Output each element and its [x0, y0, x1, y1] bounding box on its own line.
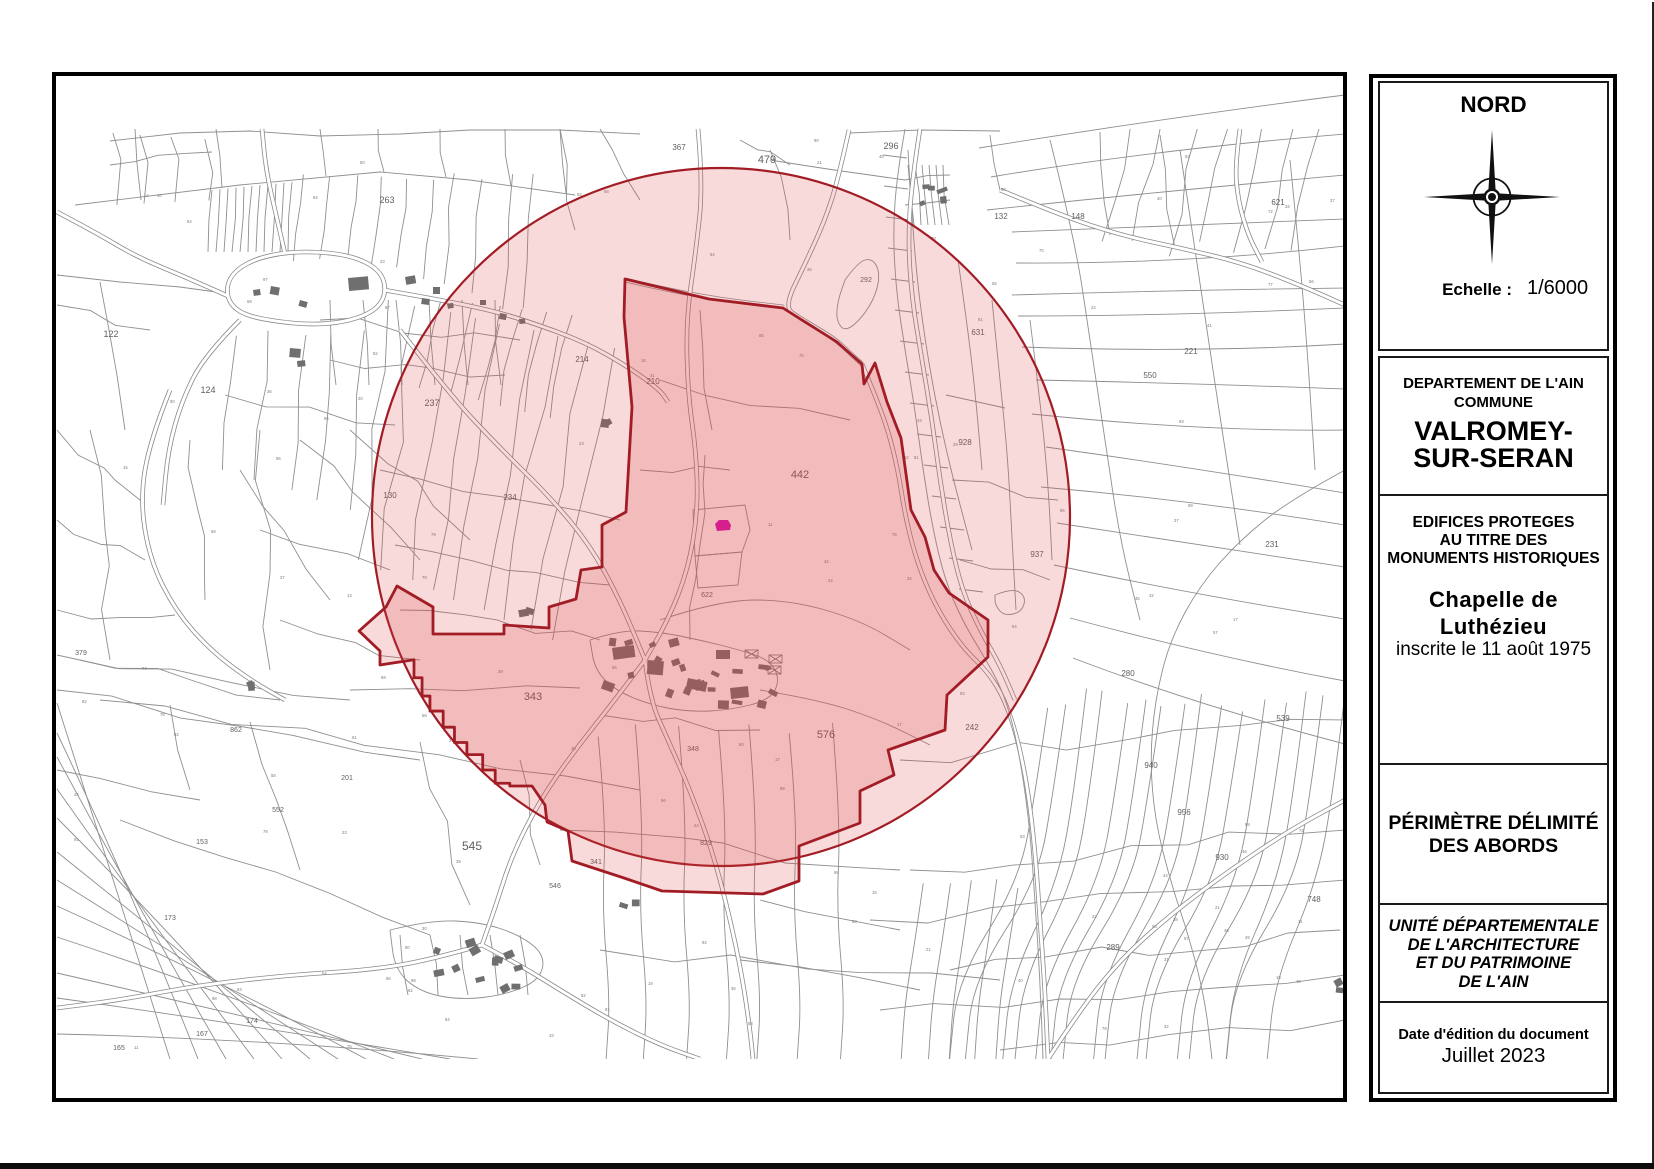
svg-text:NORD: NORD — [1460, 92, 1526, 117]
svg-text:367: 367 — [672, 143, 686, 152]
svg-text:80: 80 — [405, 945, 410, 950]
svg-text:Luthézieu: Luthézieu — [1440, 614, 1547, 639]
svg-text:44: 44 — [1163, 873, 1168, 878]
svg-text:132: 132 — [994, 212, 1008, 221]
svg-text:38: 38 — [1173, 917, 1178, 922]
svg-text:862: 862 — [230, 727, 242, 734]
svg-text:82: 82 — [373, 351, 378, 356]
svg-text:40: 40 — [1018, 978, 1023, 983]
svg-text:479: 479 — [758, 154, 776, 166]
svg-text:956: 956 — [1177, 808, 1191, 817]
svg-text:42: 42 — [1149, 593, 1154, 598]
svg-text:57: 57 — [1184, 936, 1189, 941]
svg-text:930: 930 — [1215, 853, 1229, 862]
svg-text:552: 552 — [272, 807, 284, 814]
svg-text:56: 56 — [422, 713, 427, 718]
svg-text:11: 11 — [134, 1045, 139, 1050]
svg-text:539: 539 — [1276, 714, 1290, 723]
svg-text:57: 57 — [1213, 630, 1218, 635]
svg-text:23: 23 — [380, 259, 385, 264]
svg-text:Date d'édition du document: Date d'édition du document — [1398, 1027, 1589, 1043]
svg-text:37: 37 — [1330, 198, 1335, 203]
svg-text:74: 74 — [142, 666, 147, 671]
svg-text:68: 68 — [211, 529, 216, 534]
svg-text:21: 21 — [817, 160, 822, 165]
svg-text:98: 98 — [212, 996, 217, 1001]
svg-text:263: 263 — [379, 195, 394, 205]
svg-text:EDIFICES PROTEGES: EDIFICES PROTEGES — [1413, 514, 1575, 531]
svg-text:COMMUNE: COMMUNE — [1454, 394, 1533, 411]
svg-text:1/6000: 1/6000 — [1527, 277, 1588, 299]
svg-text:Juillet 2023: Juillet 2023 — [1442, 1044, 1546, 1067]
svg-text:89: 89 — [1188, 503, 1193, 508]
svg-text:79: 79 — [263, 829, 268, 834]
svg-text:ET DU PATRIMOINE: ET DU PATRIMOINE — [1416, 954, 1572, 972]
svg-text:66: 66 — [1309, 279, 1314, 284]
svg-text:20: 20 — [358, 396, 363, 401]
svg-text:280: 280 — [1121, 669, 1135, 678]
svg-text:19: 19 — [648, 981, 653, 986]
svg-text:89: 89 — [381, 675, 386, 680]
svg-text:621: 621 — [1271, 198, 1285, 207]
svg-text:inscrite le 11 août 1975: inscrite le 11 août 1975 — [1396, 639, 1591, 660]
svg-text:545: 545 — [462, 839, 482, 853]
svg-text:90: 90 — [814, 138, 819, 143]
svg-text:11: 11 — [1298, 919, 1303, 924]
svg-text:94: 94 — [313, 195, 318, 200]
svg-text:72: 72 — [1268, 209, 1273, 214]
svg-text:379: 379 — [75, 650, 87, 657]
svg-text:296: 296 — [883, 141, 898, 151]
svg-text:Echelle :: Echelle : — [1442, 280, 1512, 299]
svg-text:36: 36 — [731, 986, 736, 991]
svg-text:48: 48 — [1224, 928, 1229, 933]
svg-text:DE L'ARCHITECTURE: DE L'ARCHITECTURE — [1408, 936, 1581, 954]
svg-text:52: 52 — [1185, 154, 1190, 159]
svg-text:50: 50 — [360, 160, 365, 165]
svg-text:97: 97 — [263, 277, 268, 282]
svg-text:78: 78 — [160, 712, 165, 717]
svg-text:221: 221 — [1184, 347, 1198, 356]
svg-text:36: 36 — [267, 389, 272, 394]
svg-text:90: 90 — [170, 399, 175, 404]
svg-text:58: 58 — [1152, 924, 1157, 929]
svg-text:50: 50 — [1001, 187, 1006, 192]
svg-text:49: 49 — [1245, 935, 1250, 940]
svg-text:MONUMENTS HISTORIQUES: MONUMENTS HISTORIQUES — [1387, 550, 1599, 567]
svg-text:UNITÉ DÉPARTEMENTALE: UNITÉ DÉPARTEMENTALE — [1389, 916, 1600, 935]
svg-text:122: 122 — [103, 329, 118, 339]
svg-text:VALROMEY-: VALROMEY- — [1414, 416, 1573, 446]
svg-text:173: 173 — [164, 915, 176, 922]
svg-text:10: 10 — [1276, 975, 1281, 980]
svg-text:21: 21 — [926, 947, 931, 952]
svg-text:43: 43 — [549, 1033, 554, 1038]
svg-text:940: 940 — [1144, 761, 1158, 770]
svg-text:68: 68 — [834, 870, 839, 875]
svg-text:148: 148 — [1071, 212, 1085, 221]
svg-text:98: 98 — [411, 978, 416, 983]
svg-text:39: 39 — [456, 859, 461, 864]
svg-text:153: 153 — [196, 839, 208, 846]
svg-text:PÉRIMÈTRE DÉLIMITÉ: PÉRIMÈTRE DÉLIMITÉ — [1388, 811, 1598, 834]
svg-text:58: 58 — [748, 1021, 753, 1026]
svg-text:82: 82 — [82, 699, 87, 704]
svg-text:165: 165 — [113, 1045, 125, 1052]
svg-text:201: 201 — [341, 775, 353, 782]
svg-text:Chapelle de: Chapelle de — [1429, 587, 1558, 612]
svg-text:AU TITRE DES: AU TITRE DES — [1440, 532, 1548, 549]
svg-text:17: 17 — [1233, 617, 1238, 622]
svg-text:748: 748 — [1307, 895, 1321, 904]
svg-text:550: 550 — [1143, 371, 1157, 380]
svg-text:37: 37 — [1174, 518, 1179, 523]
svg-text:40: 40 — [1296, 979, 1301, 984]
svg-text:15: 15 — [123, 465, 128, 470]
svg-text:83: 83 — [237, 987, 242, 992]
svg-text:70: 70 — [1039, 248, 1044, 253]
svg-text:41: 41 — [1207, 323, 1212, 328]
svg-text:43: 43 — [74, 792, 79, 797]
svg-text:SUR-SERAN: SUR-SERAN — [1413, 443, 1574, 473]
svg-text:92: 92 — [702, 940, 707, 945]
svg-text:546: 546 — [549, 883, 561, 890]
svg-text:22: 22 — [1092, 914, 1097, 919]
svg-text:67: 67 — [385, 305, 390, 310]
svg-text:61: 61 — [352, 735, 357, 740]
svg-text:21: 21 — [1215, 905, 1220, 910]
svg-text:40: 40 — [157, 193, 162, 198]
svg-text:32: 32 — [1164, 1024, 1169, 1029]
svg-text:77: 77 — [1268, 282, 1273, 287]
svg-text:82: 82 — [581, 993, 586, 998]
svg-text:14: 14 — [144, 193, 149, 198]
svg-text:13: 13 — [347, 593, 352, 598]
svg-text:46: 46 — [1242, 849, 1247, 854]
svg-text:15: 15 — [872, 890, 877, 895]
svg-text:DEPARTEMENT DE L'AIN: DEPARTEMENT DE L'AIN — [1403, 375, 1584, 392]
svg-text:82: 82 — [174, 732, 179, 737]
svg-text:58: 58 — [271, 773, 276, 778]
svg-text:95: 95 — [276, 456, 281, 461]
svg-text:81: 81 — [605, 1007, 610, 1012]
svg-text:35: 35 — [1135, 596, 1140, 601]
svg-text:66: 66 — [386, 976, 391, 981]
svg-text:231: 231 — [1265, 540, 1279, 549]
svg-text:83: 83 — [852, 919, 857, 924]
svg-text:167: 167 — [196, 1031, 208, 1038]
svg-text:53: 53 — [1020, 834, 1025, 839]
svg-text:92: 92 — [408, 988, 413, 993]
svg-text:289: 289 — [1106, 943, 1120, 952]
svg-text:93: 93 — [1179, 419, 1184, 424]
svg-text:124: 124 — [200, 385, 215, 395]
svg-text:DE L'AIN: DE L'AIN — [1459, 973, 1530, 991]
svg-text:78: 78 — [1102, 1026, 1107, 1031]
svg-text:40: 40 — [1157, 196, 1162, 201]
svg-text:84: 84 — [445, 1017, 450, 1022]
svg-text:DES ABORDS: DES ABORDS — [1429, 835, 1558, 857]
svg-text:91: 91 — [74, 837, 79, 842]
svg-text:75: 75 — [347, 1044, 352, 1049]
svg-text:30: 30 — [422, 926, 427, 931]
svg-text:37: 37 — [280, 575, 285, 580]
svg-text:174: 174 — [246, 1018, 258, 1025]
svg-text:22: 22 — [1091, 305, 1096, 310]
svg-text:54: 54 — [322, 971, 327, 976]
svg-text:95: 95 — [324, 416, 329, 421]
svg-text:23: 23 — [342, 830, 347, 835]
svg-text:33: 33 — [1285, 204, 1290, 209]
svg-text:98: 98 — [1245, 822, 1250, 827]
svg-text:58: 58 — [992, 281, 997, 286]
svg-text:74: 74 — [1299, 828, 1304, 833]
svg-text:45: 45 — [879, 154, 884, 159]
svg-text:69: 69 — [247, 299, 252, 304]
svg-text:54: 54 — [187, 219, 192, 224]
svg-text:31: 31 — [1164, 957, 1169, 962]
